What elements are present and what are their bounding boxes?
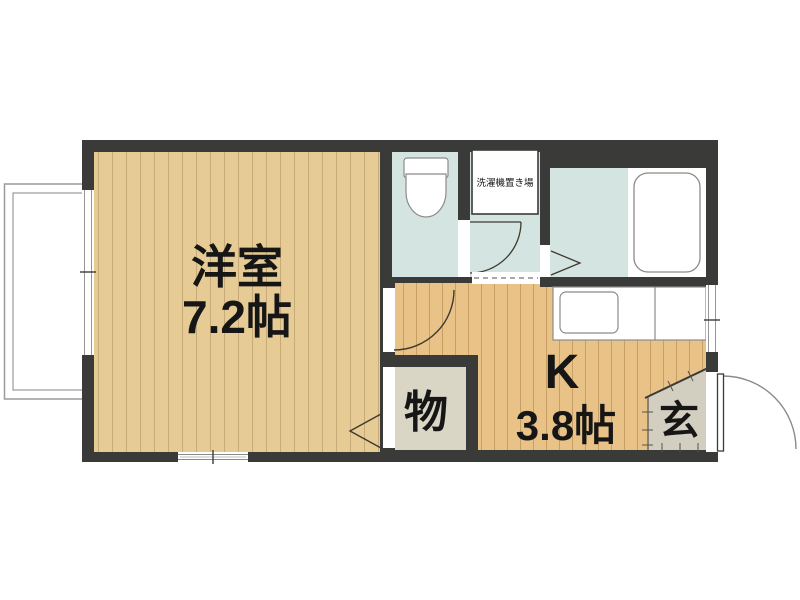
bathtub-icon (628, 168, 706, 277)
floor-plan-drawing: 洗濯機置き場 (0, 0, 800, 600)
closet-label: 物 (404, 388, 448, 437)
entrance-door (706, 372, 796, 452)
kitchen-window (704, 285, 720, 352)
kitchen-sink-icon (560, 292, 618, 333)
western-room-area: 7.2帖 (182, 291, 292, 343)
kitchen-counter (553, 287, 706, 340)
laundry-label: 洗濯機置き場 (476, 177, 534, 189)
balcony (5, 184, 92, 399)
washroom-opening (472, 272, 540, 284)
kitchen-area: 3.8帖 (516, 402, 616, 449)
left-window (80, 190, 96, 355)
toilet-icon (404, 158, 448, 217)
floor-plan-page: 洗濯機置き場 (0, 0, 800, 600)
western-room-label: 洋室 (191, 241, 283, 293)
kitchen-label: K (545, 346, 580, 399)
wall-under-bathroom (540, 277, 706, 287)
bottom-window (178, 450, 248, 464)
washing-machine-area: 洗濯機置き場 (472, 150, 538, 214)
entrance-label: 玄 (659, 399, 699, 443)
